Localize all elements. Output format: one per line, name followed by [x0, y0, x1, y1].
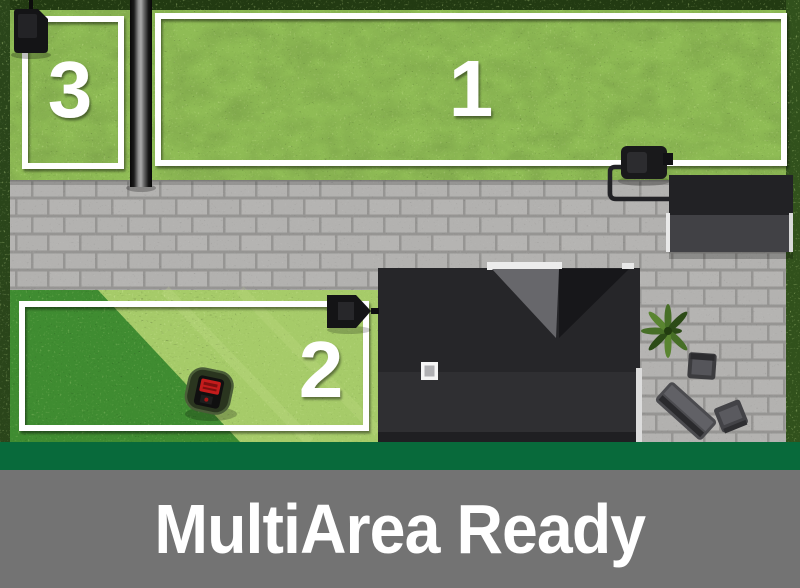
roof-gutter: [487, 262, 562, 270]
roof-gutter-right: [636, 368, 642, 442]
zone-1-label: 1: [449, 44, 494, 133]
garage-roof: [666, 175, 793, 259]
caption-text: MultiArea Ready: [155, 494, 646, 564]
brand-green-bar: [0, 442, 800, 470]
zone-2-label: 2: [299, 325, 344, 414]
garden-post: [126, 0, 156, 192]
house-roof: [378, 262, 642, 442]
garden-scene: 3 1 2: [0, 0, 800, 442]
hedge-top: [0, 0, 800, 10]
multiarea-ready-graphic: 3 1 2 MultiArea Ready: [0, 0, 800, 588]
hedge-left: [0, 0, 10, 442]
chimney: [421, 362, 438, 380]
garden-chair-1: [687, 352, 717, 380]
caption-bar: MultiArea Ready: [0, 470, 800, 588]
zone-3-label: 3: [48, 45, 93, 134]
